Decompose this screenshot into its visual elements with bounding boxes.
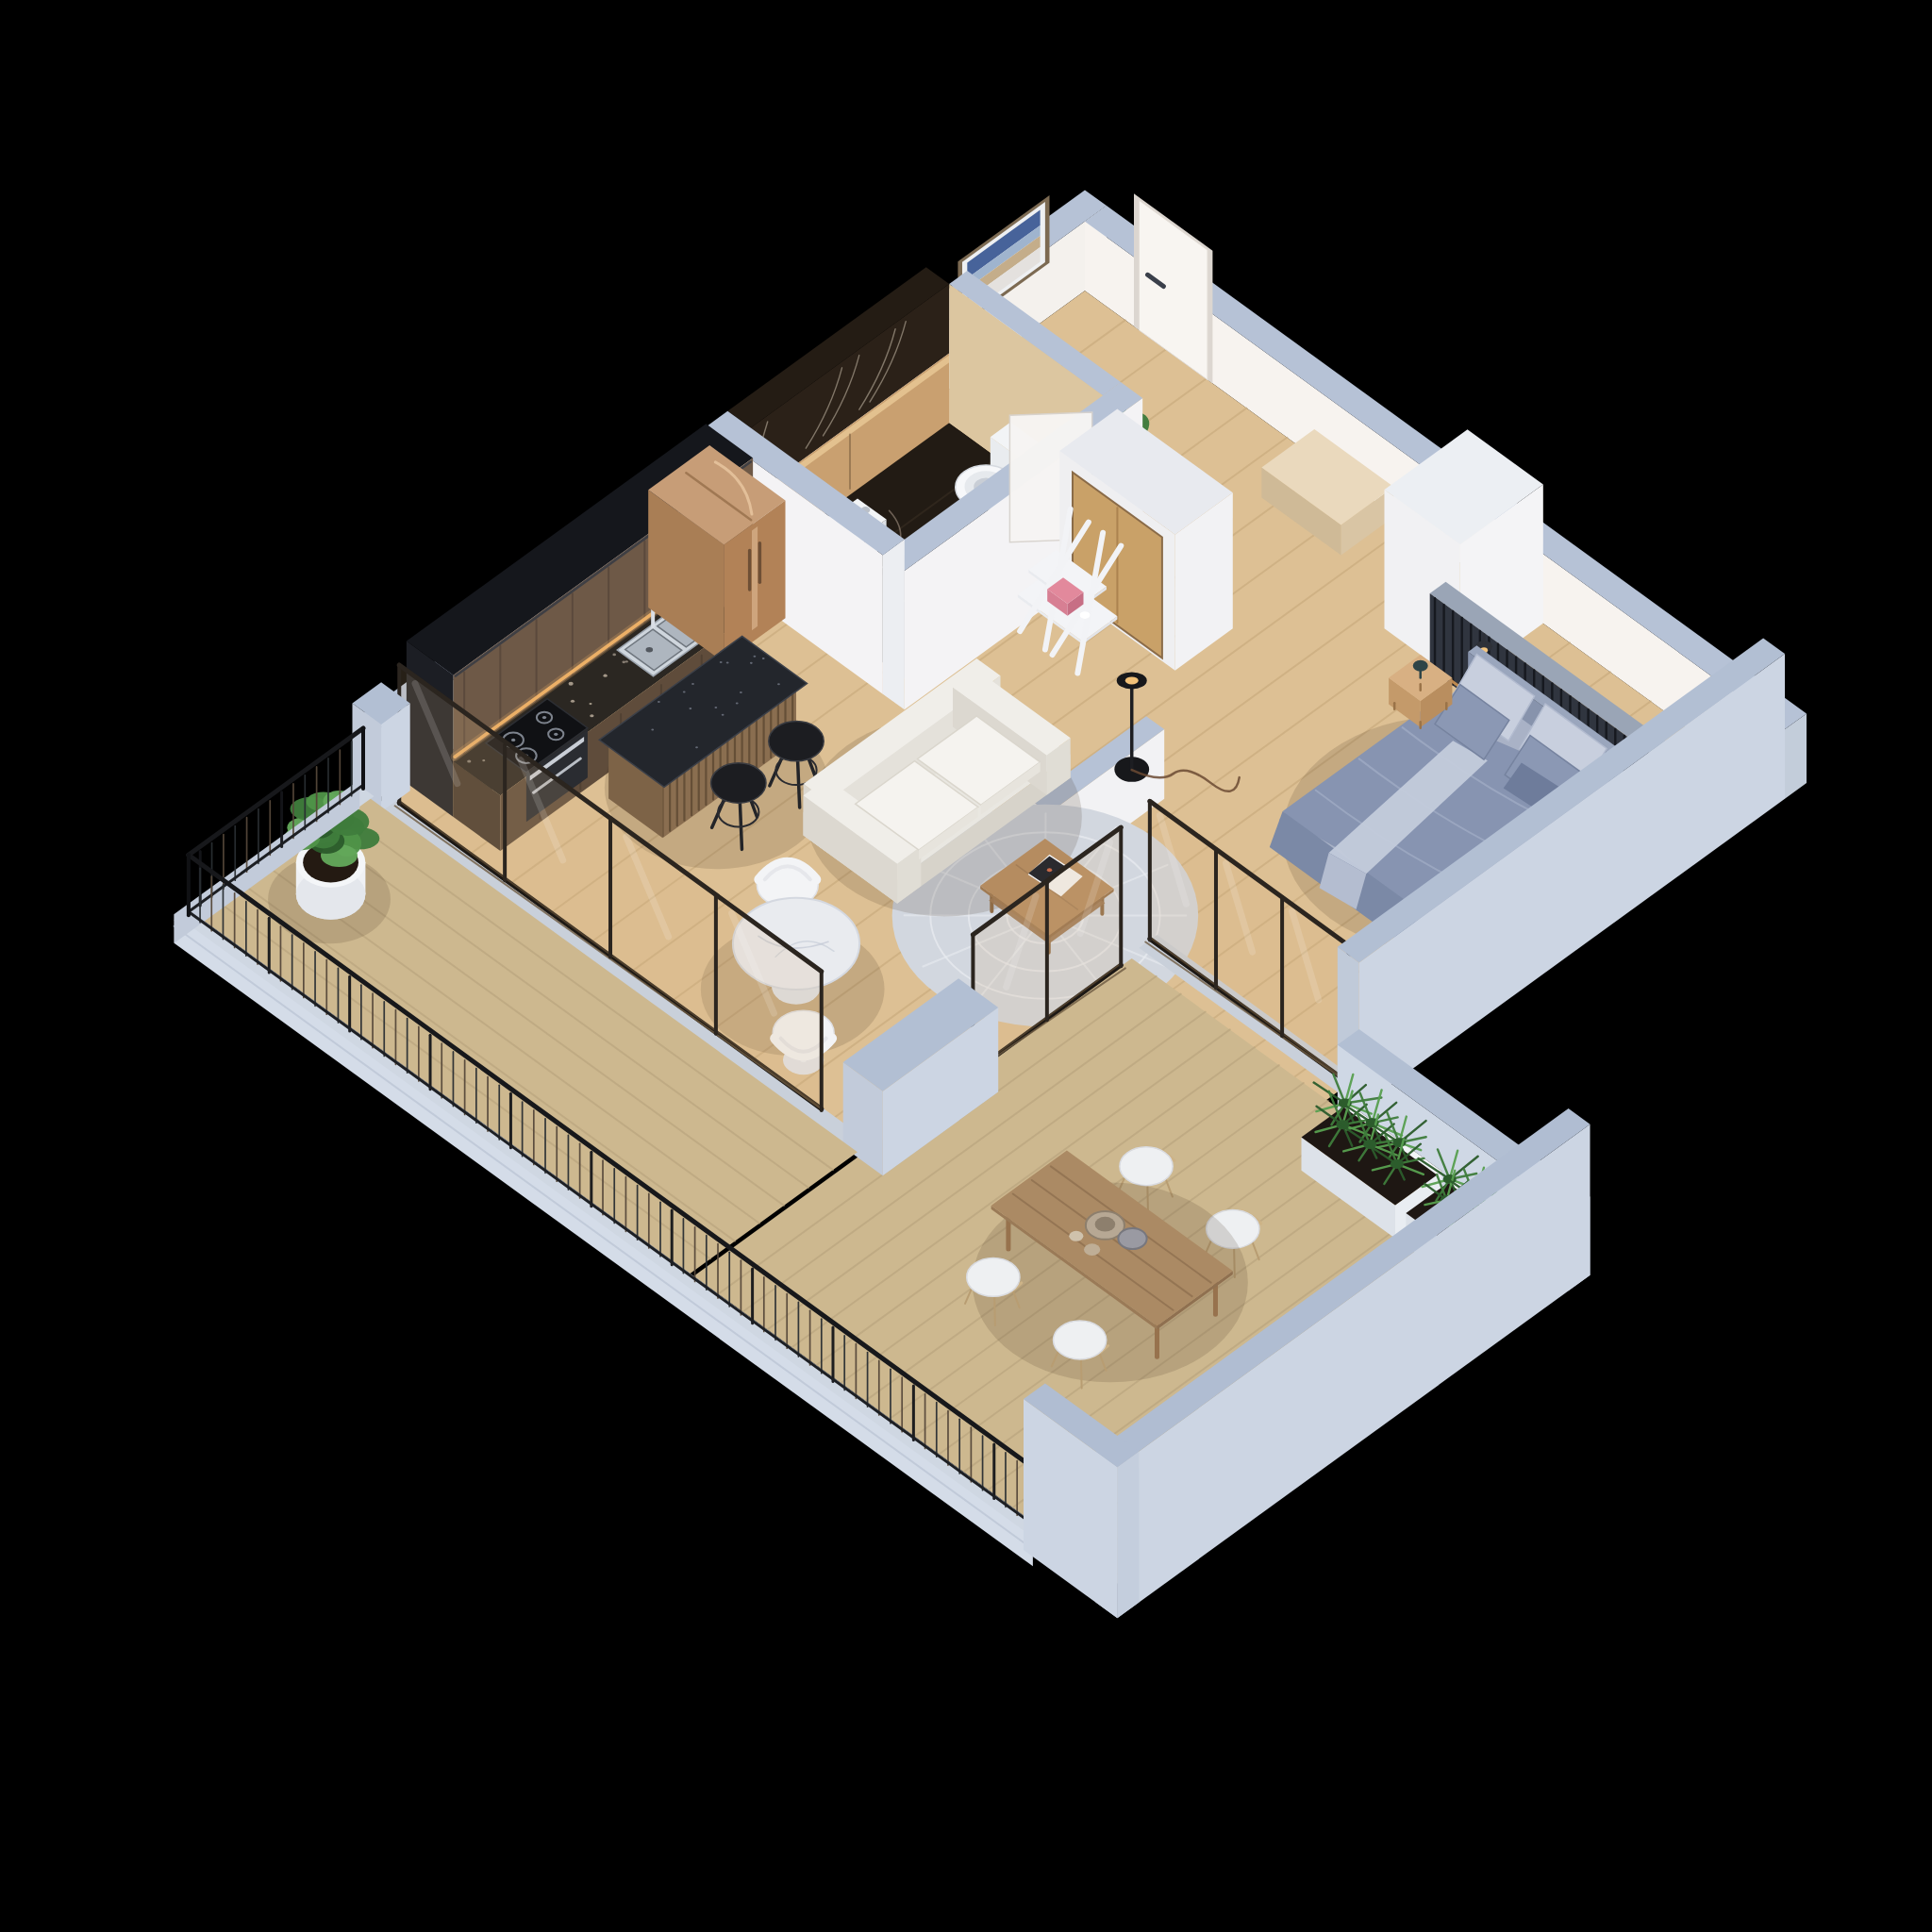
background: Isometric 3D floor plan render — one-bed…	[0, 0, 1932, 1932]
apartment-floorplan-render: Isometric 3D floor plan render — one-bed…	[0, 0, 1932, 1932]
